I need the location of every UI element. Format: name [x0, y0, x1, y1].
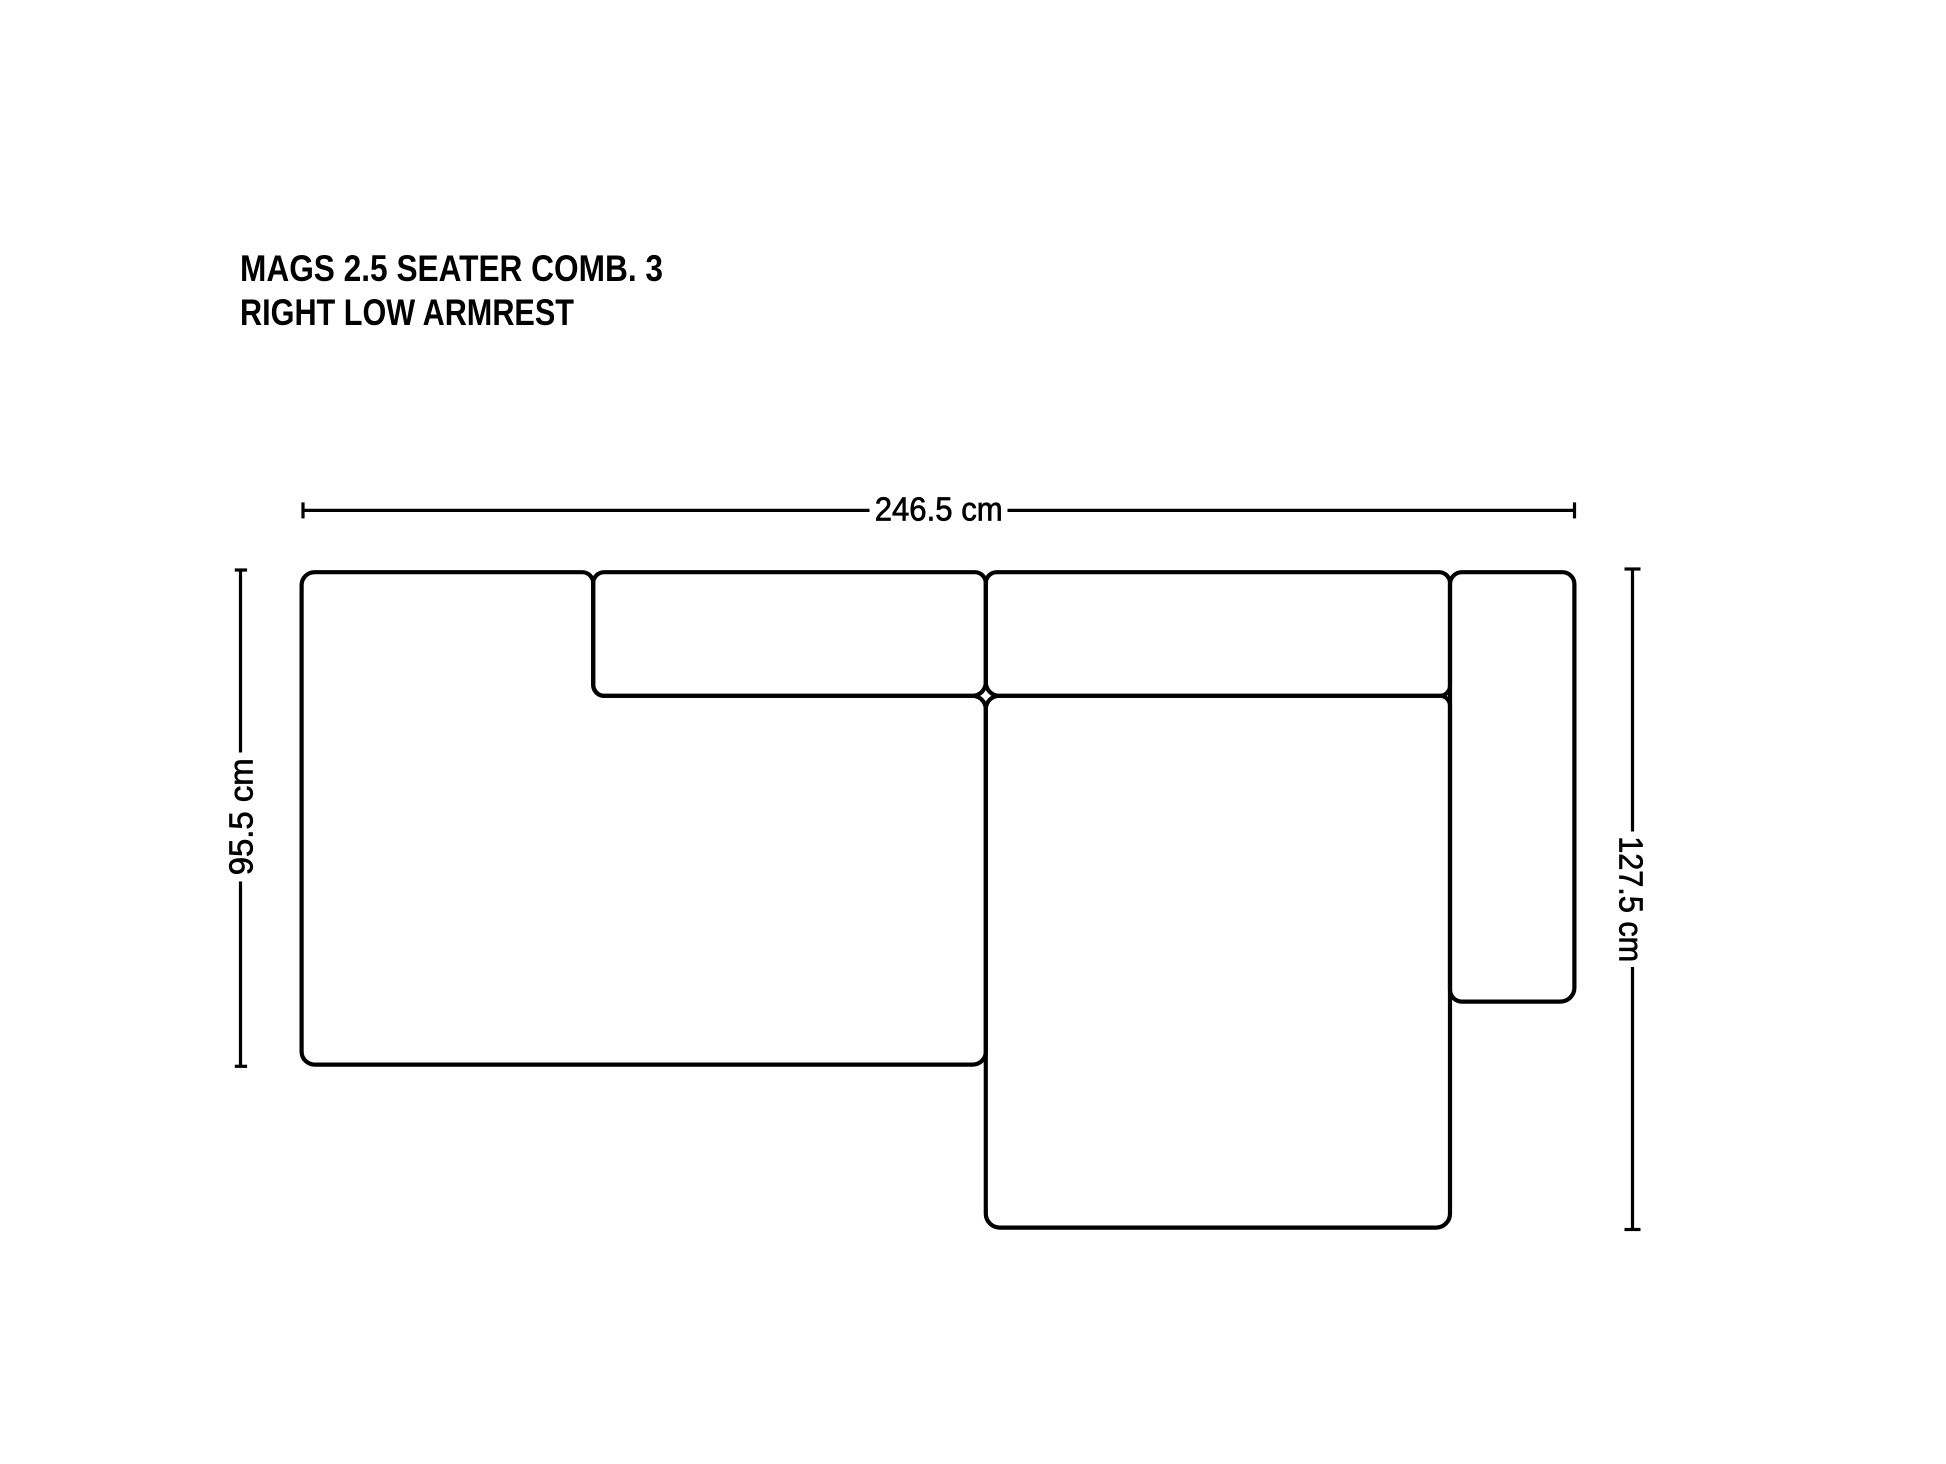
svg-text:95.5 cm: 95.5 cm — [224, 758, 261, 875]
svg-text:246.5 cm: 246.5 cm — [875, 491, 1003, 528]
svg-text:RIGHT LOW ARMREST: RIGHT LOW ARMREST — [240, 291, 574, 333]
svg-text:127.5 cm: 127.5 cm — [1612, 836, 1649, 962]
svg-text:MAGS 2.5 SEATER COMB. 3: MAGS 2.5 SEATER COMB. 3 — [240, 247, 663, 289]
